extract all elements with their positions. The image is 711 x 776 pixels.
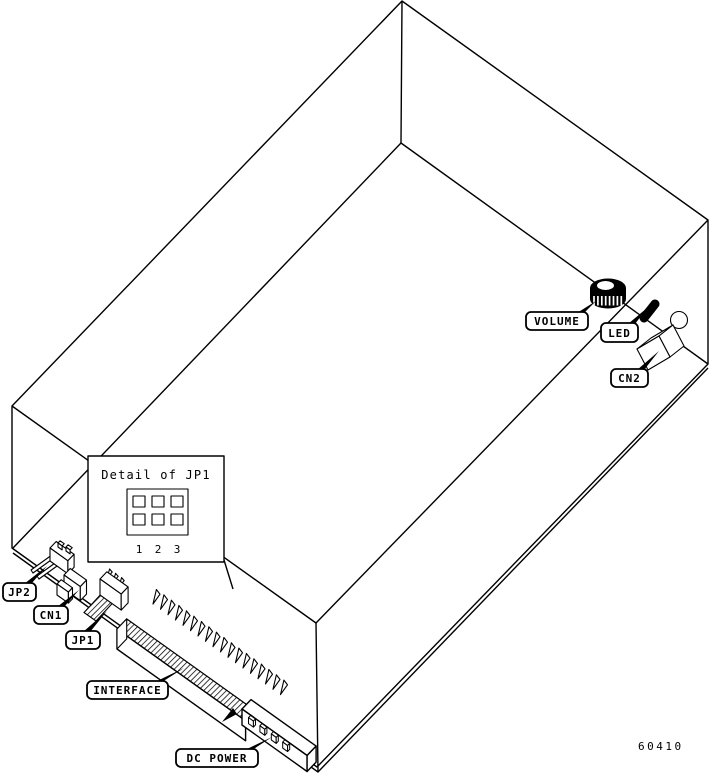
figure-canvas: Detail of JP1 1 2 3 xyxy=(0,0,711,776)
chassis-back-vertical-edge xyxy=(401,1,402,143)
dc-pin-side xyxy=(265,727,267,735)
jumper-pin-number-1: 1 xyxy=(136,543,143,556)
chassis-body xyxy=(12,1,708,767)
callout-label: DC POWER xyxy=(187,752,248,765)
callout-jp1: JP1 xyxy=(66,611,107,649)
jumper-pad xyxy=(171,496,183,507)
dc-pin-side xyxy=(253,719,255,727)
volume-knob-hub xyxy=(597,281,614,290)
jumper-pad xyxy=(171,514,183,525)
callout-label: LED xyxy=(608,327,631,340)
inset-title: Detail of JP1 xyxy=(101,468,211,482)
callout-label: JP2 xyxy=(8,586,31,599)
dc-pin-side xyxy=(288,743,290,751)
jumper-pad xyxy=(133,514,145,525)
callout-label: JP1 xyxy=(72,634,95,647)
jumper-pin-number-3: 3 xyxy=(174,543,181,556)
callout-jp2: JP2 xyxy=(3,566,47,601)
callout-label: VOLUME xyxy=(534,315,580,328)
drawing-number: 60410 xyxy=(638,740,684,753)
jumper-pad xyxy=(133,496,145,507)
callout-label: CN2 xyxy=(618,372,641,385)
dc-pin-side xyxy=(276,735,278,743)
callout-label: INTERFACE xyxy=(93,684,162,697)
jumper-pad xyxy=(152,514,164,525)
chassis-outline xyxy=(12,1,708,772)
volume-knob xyxy=(590,279,626,309)
jumper-pad xyxy=(152,496,164,507)
callout-label: CN1 xyxy=(40,609,63,622)
callout-dc-power: DC POWER xyxy=(176,737,272,767)
jumper-pin-number-2: 2 xyxy=(155,543,162,556)
